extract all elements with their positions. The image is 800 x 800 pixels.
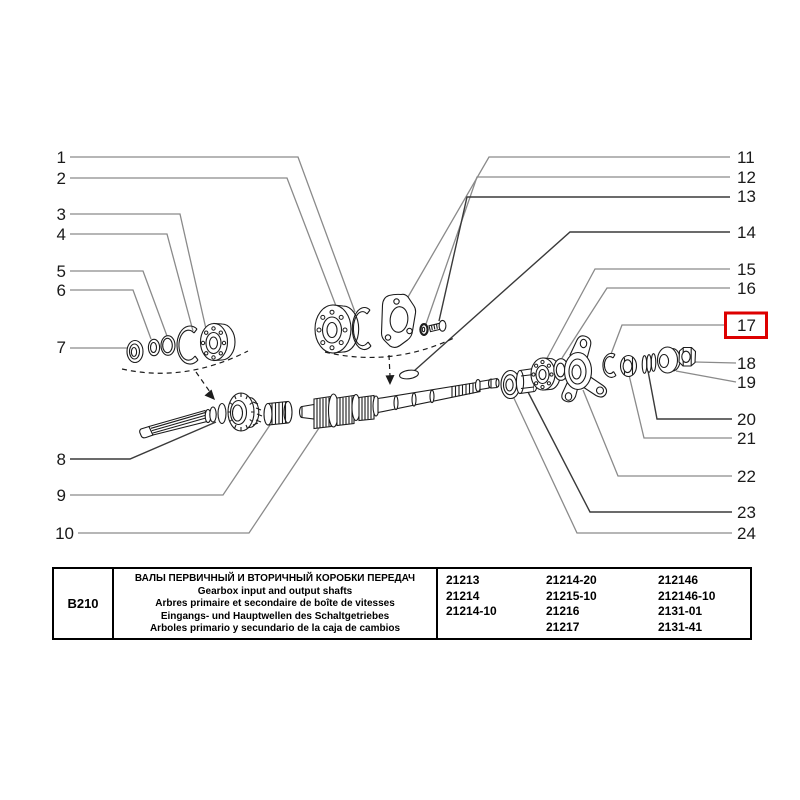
- callout-16[interactable]: 16: [737, 279, 756, 298]
- callout-19[interactable]: 19: [737, 373, 756, 392]
- callout-10[interactable]: 10: [55, 524, 74, 543]
- seal-ring-part-17: [603, 353, 616, 377]
- leader-line-5: [70, 271, 167, 336]
- model-number: 212146: [658, 573, 750, 589]
- leader-line-18: [695, 362, 736, 363]
- title-line: Eingangs- und Hauptwellen des Schaltgetr…: [114, 611, 436, 624]
- model-column-3: 212146212146-102131-012131-41: [658, 573, 750, 638]
- model-column-1: 212132121421214-10: [446, 573, 546, 638]
- callout-numbers: 1 2 3 4 5 6 7 8 9 10 11 12 13 14 15 16 1…: [55, 148, 756, 543]
- title-block-table: B210 ВАЛЫ ПЕРВИЧНЫЙ И ВТОРИЧНЫЙ КОРОБКИ …: [52, 567, 752, 640]
- leader-line-2: [70, 178, 336, 306]
- callout-11[interactable]: 11: [737, 148, 755, 167]
- callout-12[interactable]: 12: [737, 168, 756, 187]
- parts-catalog-page: 1 2 3 4 5 6 7 8 9 10 11 12 13 14 15 16 1…: [0, 0, 800, 800]
- model-number: 212146-10: [658, 589, 750, 605]
- callout-2[interactable]: 2: [57, 169, 66, 188]
- callout-23[interactable]: 23: [737, 503, 756, 522]
- callout-22[interactable]: 22: [737, 467, 756, 486]
- snap-ring-part-left: [177, 326, 198, 364]
- callout-20[interactable]: 20: [737, 410, 756, 429]
- catalog-section-code: B210: [54, 569, 114, 638]
- title-line: Arboles primario y secundario de la caja…: [114, 623, 436, 636]
- washer-part-left: [148, 339, 159, 355]
- callout-24[interactable]: 24: [737, 524, 756, 543]
- exploded-diagram: 1 2 3 4 5 6 7 8 9 10 11 12 13 14 15 16 1…: [0, 0, 800, 565]
- model-number: 21214: [446, 589, 546, 605]
- leader-line-13: [439, 197, 730, 321]
- model-number: 2131-41: [658, 620, 750, 636]
- spring-washer-part: [642, 354, 656, 374]
- output-shaft-part: [300, 379, 500, 429]
- model-number: 21213: [446, 573, 546, 589]
- assembly-arrow-left: [196, 372, 215, 400]
- leader-line-19: [676, 371, 736, 382]
- model-number: 21214-10: [446, 604, 546, 620]
- applicable-models: 212132121421214-10 21214-2021215-1021216…: [438, 569, 750, 638]
- callout-8[interactable]: 8: [57, 450, 66, 469]
- leader-line-22: [583, 390, 732, 476]
- callout-9[interactable]: 9: [57, 486, 66, 505]
- leader-line-6: [70, 290, 151, 339]
- leader-line-21: [629, 375, 732, 438]
- leader-line-20: [648, 371, 732, 419]
- leader-line-8: [70, 422, 216, 459]
- callout-3[interactable]: 3: [57, 205, 66, 224]
- assembly-arrow-middle: [386, 355, 395, 385]
- title-line: ВАЛЫ ПЕРВИЧНЫЙ И ВТОРИЧНЫЙ КОРОБКИ ПЕРЕД…: [114, 573, 436, 586]
- callout-21[interactable]: 21: [737, 429, 756, 448]
- callout-18[interactable]: 18: [737, 354, 756, 373]
- leader-line-4: [70, 234, 193, 331]
- needle-bushing-part: [264, 402, 292, 426]
- multilingual-title: ВАЛЫ ПЕРВИЧНЫЙ И ВТОРИЧНЫЙ КОРОБКИ ПЕРЕД…: [114, 569, 438, 638]
- callout-14[interactable]: 14: [737, 223, 756, 242]
- leader-line-12: [426, 177, 730, 324]
- lock-washer-part: [420, 324, 427, 335]
- callout-1[interactable]: 1: [57, 148, 66, 167]
- thrust-plug-part: [399, 369, 419, 380]
- title-line: Gearbox input and output shafts: [114, 586, 436, 599]
- callout-4[interactable]: 4: [57, 225, 66, 244]
- bolt-part: [429, 320, 446, 331]
- leader-line-10: [78, 413, 329, 533]
- spacer-ring-part: [161, 336, 175, 356]
- leader-line-11: [408, 157, 730, 297]
- model-number: 21217: [546, 620, 658, 636]
- hex-nut-part: [679, 348, 696, 367]
- title-line: Arbres primaire et secondaire de boîte d…: [114, 598, 436, 611]
- callout-7[interactable]: 7: [57, 338, 66, 357]
- cap-bushing-part: [658, 347, 681, 373]
- model-number: 21216: [546, 604, 658, 620]
- model-column-2: 21214-2021215-102121621217: [546, 573, 658, 638]
- model-number: 21214-20: [546, 573, 658, 589]
- model-number: 21215-10: [546, 589, 658, 605]
- callout-13[interactable]: 13: [737, 187, 756, 206]
- model-number: 2131-01: [658, 604, 750, 620]
- callout-17-highlighted[interactable]: 17: [737, 316, 756, 335]
- callout-5[interactable]: 5: [57, 262, 66, 281]
- bearing-plate-part: [382, 294, 416, 347]
- oil-seal-part: [127, 341, 143, 363]
- callout-6[interactable]: 6: [57, 281, 66, 300]
- input-shaft-bearing-part: [201, 324, 236, 361]
- input-shaft-part: [140, 393, 262, 438]
- flange-nut-part: [621, 356, 637, 377]
- callout-15[interactable]: 15: [737, 260, 756, 279]
